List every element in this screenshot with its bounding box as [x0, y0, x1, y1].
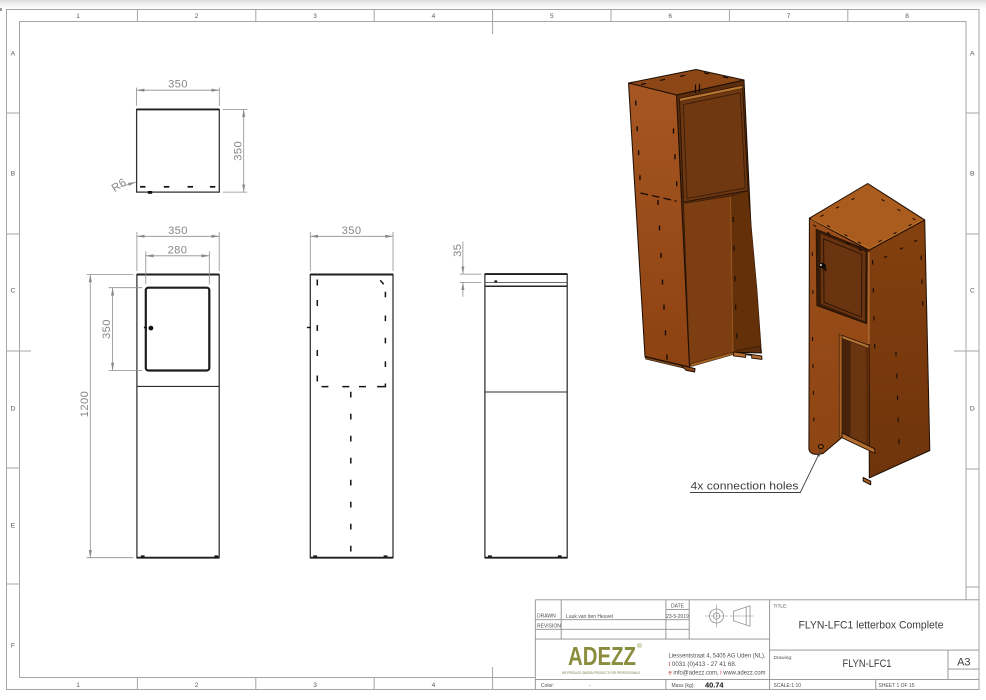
svg-text:6: 6	[668, 13, 672, 20]
svg-text:280: 280	[168, 244, 188, 256]
svg-text:B: B	[970, 170, 975, 177]
svg-text:A: A	[970, 50, 975, 57]
svg-text:350: 350	[101, 319, 113, 339]
svg-text:B: B	[11, 170, 16, 177]
svg-text:2: 2	[195, 682, 199, 689]
svg-text:t 0031 (0)413 - 27 41 68.: t 0031 (0)413 - 27 41 68.	[669, 662, 737, 668]
svg-text:4: 4	[432, 682, 436, 689]
svg-text:4: 4	[432, 13, 436, 20]
svg-text:C: C	[10, 287, 15, 294]
svg-text:7: 7	[787, 13, 791, 20]
svg-text:Mass (kg):: Mass (kg):	[672, 683, 695, 689]
svg-text:40.74: 40.74	[705, 681, 724, 690]
svg-text:D: D	[10, 405, 15, 412]
svg-text:350: 350	[168, 78, 188, 90]
svg-text:D: D	[970, 405, 975, 412]
svg-text:1200: 1200	[79, 391, 91, 418]
svg-text:e info@adezz.com, i www.adezz.: e info@adezz.com, i www.adezz.com	[669, 670, 766, 676]
svg-text:A: A	[11, 50, 16, 57]
svg-text:35: 35	[452, 244, 464, 257]
svg-text:TITLE:: TITLE:	[774, 603, 788, 608]
svg-text:Luuk van den Heuvel: Luuk van den Heuvel	[566, 614, 613, 620]
svg-text:REVISION: REVISION	[537, 623, 561, 629]
svg-text:23-5-2019: 23-5-2019	[666, 614, 689, 620]
svg-text:350: 350	[342, 225, 362, 237]
svg-text:Drawing:: Drawing:	[774, 655, 793, 661]
svg-text:1: 1	[76, 682, 80, 689]
svg-text:WE PRODUCE GARDEN PRODUCTS FOR: WE PRODUCE GARDEN PRODUCTS FOR PROFESSIO…	[562, 671, 641, 675]
svg-text:DRAWN: DRAWN	[537, 614, 556, 620]
svg-text:5: 5	[550, 13, 554, 20]
svg-text:3: 3	[313, 13, 317, 20]
svg-text:A3: A3	[957, 656, 970, 668]
svg-text:1: 1	[76, 13, 80, 20]
svg-text:DATE: DATE	[671, 604, 685, 610]
svg-text:350: 350	[168, 225, 188, 237]
svg-text:8: 8	[905, 13, 909, 20]
svg-text:FLYN-LFC1: FLYN-LFC1	[843, 658, 892, 670]
svg-text:®: ®	[637, 642, 642, 650]
svg-text:F: F	[11, 642, 15, 649]
svg-text:Color:: Color:	[541, 683, 554, 689]
svg-text:C: C	[970, 287, 975, 294]
svg-text:Liessentstraat 4, 5405 AG Uden: Liessentstraat 4, 5405 AG Uden (NL).	[669, 654, 766, 660]
svg-text:FLYN-LFC1 letterbox Complete: FLYN-LFC1 letterbox Complete	[799, 619, 944, 631]
svg-text:3: 3	[313, 682, 317, 689]
svg-text:E: E	[11, 522, 16, 529]
svg-text:350: 350	[232, 141, 244, 161]
svg-text:SCALE:1:10: SCALE:1:10	[774, 683, 802, 689]
svg-text:2: 2	[195, 13, 199, 20]
svg-text:ADEZZ: ADEZZ	[568, 641, 636, 671]
svg-text:4x connection holes: 4x connection holes	[691, 481, 799, 493]
svg-text:SHEET 1 OF 15: SHEET 1 OF 15	[879, 683, 915, 689]
